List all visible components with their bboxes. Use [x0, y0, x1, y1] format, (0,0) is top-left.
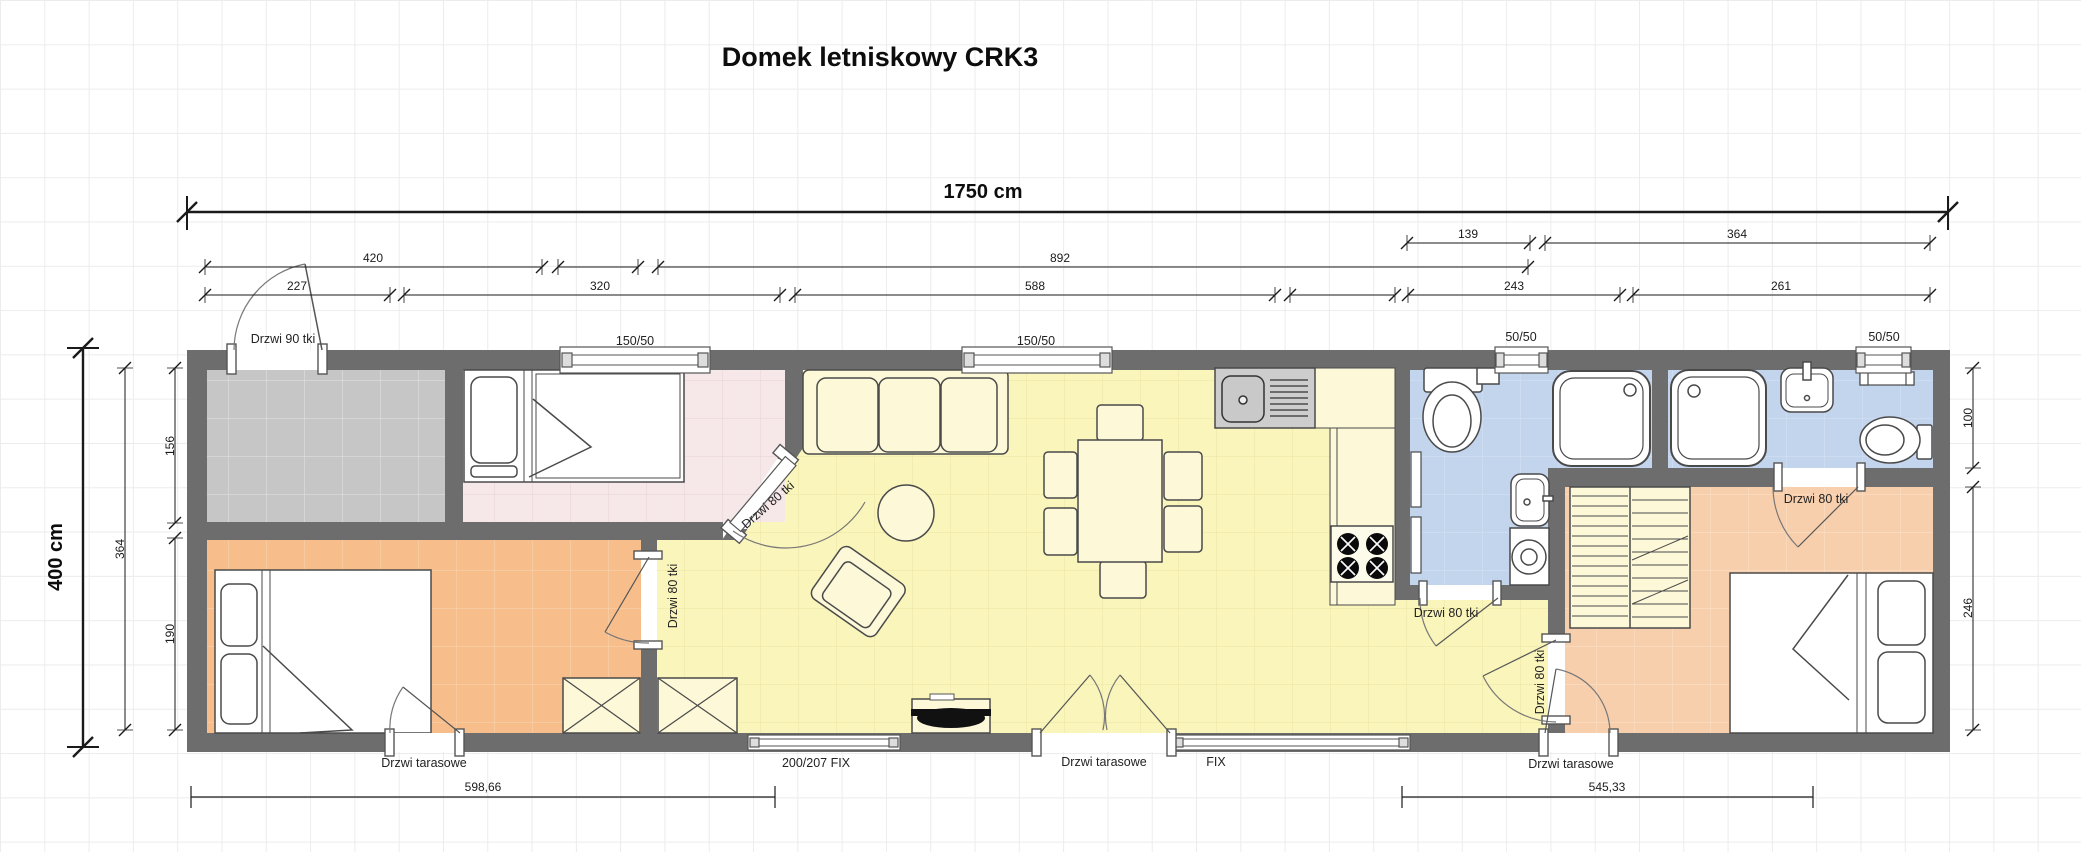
dim-364-left: 364 [113, 539, 127, 559]
hall-door-gap [641, 557, 657, 643]
window-50-1 [1495, 347, 1548, 373]
washbasin-1 [1511, 474, 1553, 526]
dim-100: 100 [1961, 408, 1975, 428]
label-window-50-2: 50/50 [1868, 330, 1899, 344]
wall-bath-bottom-b [1862, 468, 1933, 487]
washing-machine [1510, 528, 1549, 585]
dim-545-33: 545,33 [1589, 780, 1626, 794]
dim-190: 190 [163, 624, 177, 644]
dining-table [1078, 440, 1162, 562]
bed-single-pink-room [464, 370, 684, 482]
sofa [803, 370, 1008, 454]
dim-left-rooms [167, 362, 183, 736]
label-window-150-1: 150/50 [616, 334, 654, 348]
wall-left [187, 350, 207, 752]
shower-tray-2 [1671, 370, 1766, 466]
wall-entry-bedroom [445, 370, 463, 522]
dim-139: 139 [1458, 227, 1478, 241]
dim-261: 261 [1771, 279, 1791, 293]
dim-156: 156 [163, 436, 177, 456]
window-50-2 [1856, 347, 1911, 373]
label-window-50-1: 50/50 [1505, 330, 1536, 344]
dim-243: 243 [1504, 279, 1524, 293]
label-door-bedroom3: Drzwi 80 tki [1533, 650, 1547, 715]
window-150-2 [962, 347, 1112, 373]
stove [1331, 526, 1393, 582]
dim-total-height [67, 338, 99, 757]
label-terrace-door-right: Drzwi tarasowe [1528, 757, 1613, 771]
entry-door-gap [236, 350, 318, 370]
floor-plan-drawing: 1750 cm 400 cm 139 364 420 892 227 320 5… [0, 0, 2081, 852]
label-fixed-window-200: 200/207 FIX [782, 756, 851, 770]
dim-total-width [177, 196, 1958, 230]
label-entry-door: Drzwi 90 tki [251, 332, 316, 346]
label-door-bathroom1: Drzwi 80 tki [1414, 606, 1479, 620]
terrace-door-gap-center [1041, 733, 1168, 752]
wall-bedrooms-horizontal [207, 522, 723, 540]
tv-unit [911, 694, 991, 733]
shower-tray-1 [1553, 371, 1650, 466]
dim-227: 227 [287, 279, 307, 293]
dim-label-total-width: 1750 cm [944, 181, 1023, 203]
label-door-hall: Drzwi 80 tki [666, 564, 680, 629]
dim-row-outer [199, 287, 1936, 303]
terrace-door-gap-right [1548, 733, 1610, 752]
wardrobe-x-right [658, 678, 737, 733]
label-terrace-door-left: Drzwi tarasowe [381, 756, 466, 770]
wall-bedroom-living [785, 350, 803, 448]
washbasin-2 [1781, 362, 1833, 412]
dim-892: 892 [1050, 251, 1070, 265]
floor-plan-page: Domek letniskowy CRK3 [0, 0, 2081, 852]
wardrobe-x-left [563, 678, 640, 733]
bedroom3-door-gap [1548, 643, 1565, 722]
bed-double-orange-room [215, 570, 431, 733]
dim-420: 420 [363, 251, 383, 265]
label-terrace-door-center: Drzwi tarasowe [1061, 755, 1146, 769]
bed-double-peach-room [1730, 573, 1933, 733]
window-150-1 [560, 347, 710, 373]
bathroom1-door-gap [1424, 585, 1494, 600]
bathroom2-radiator [1860, 372, 1914, 385]
coffee-table [878, 485, 934, 541]
dim-588: 588 [1025, 279, 1045, 293]
wall-kitchen-bathroom1 [1395, 370, 1410, 600]
dim-row-mid [199, 259, 1534, 275]
dim-246: 246 [1961, 598, 1975, 618]
toilet-1 [1423, 368, 1482, 452]
label-fixed-window: FIX [1206, 755, 1226, 769]
dim-row-inner [1401, 235, 1936, 251]
fixed-window-200-207 [748, 735, 900, 750]
dim-label-total-height: 400 cm [45, 523, 67, 591]
entry-room-floor [207, 370, 445, 522]
wall-between-showers [1652, 370, 1668, 468]
wall-bathroom1-bottom-a [1395, 585, 1420, 600]
fixed-window-right [1172, 735, 1410, 750]
bathroom2-door-gap [1782, 468, 1858, 487]
dim-bottom [191, 786, 1813, 808]
dim-320: 320 [590, 279, 610, 293]
kitchen-sink [1215, 368, 1315, 428]
dim-598-66: 598,66 [465, 780, 502, 794]
wall-right [1933, 350, 1950, 752]
label-window-150-2: 150/50 [1017, 334, 1055, 348]
wall-bath-bottom-a [1548, 468, 1777, 487]
terrace-door-gap-left [393, 733, 456, 752]
wall-living-bedroom3-a [1548, 487, 1565, 634]
wall-hall-lower [641, 643, 657, 733]
wardrobe-hatched [1570, 487, 1690, 628]
label-door-bathroom2: Drzwi 80 tki [1784, 492, 1849, 506]
dim-364-top: 364 [1727, 227, 1747, 241]
